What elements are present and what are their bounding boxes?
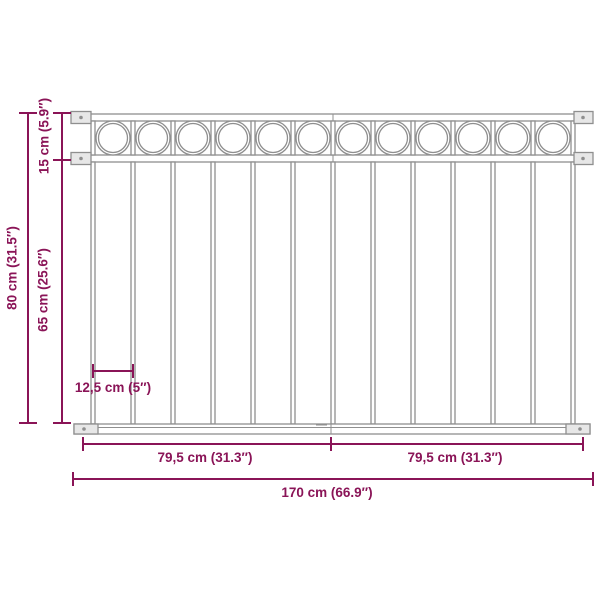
bottom-rail-end-plate-right <box>566 424 590 434</box>
label-total-height: 80 cm (31.5″) <box>5 226 20 310</box>
fence-bar <box>371 162 375 424</box>
ring-ornament <box>179 124 208 153</box>
fence-bar <box>491 162 495 424</box>
screw-icon <box>79 116 83 120</box>
fence-bar <box>331 162 335 424</box>
ring-separator <box>291 121 295 155</box>
ring-ornament <box>379 124 408 153</box>
bottom-rail <box>74 424 590 434</box>
label-right-half-width: 79,5 cm (31.3″) <box>407 450 502 465</box>
ring-separator <box>451 121 455 155</box>
dim-total-height: 80 cm (31.5″) <box>5 113 37 423</box>
ring-ornament <box>219 124 248 153</box>
ring-ornament <box>299 124 328 153</box>
ring-separator <box>171 121 175 155</box>
fence-bar <box>171 162 175 424</box>
screw-icon <box>581 157 585 161</box>
ring-separator <box>331 121 335 155</box>
dim-half-widths: 79,5 cm (31.3″) 79,5 cm (31.3″) <box>83 437 583 465</box>
diagram-canvas: 80 cm (31.5″) 15 cm (5.9″) 65 cm (25.6″)… <box>0 0 600 600</box>
ring-ornament <box>419 124 448 153</box>
label-top-rail-height: 15 cm (5.9″) <box>37 98 52 174</box>
dim-total-width: 170 cm (66.9″) <box>73 472 593 500</box>
ring-separator <box>571 121 575 155</box>
ring-separator <box>411 121 415 155</box>
screw-icon <box>581 116 585 120</box>
fence-bar <box>531 162 535 424</box>
ring-separator <box>91 121 95 155</box>
fence-bar <box>211 162 215 424</box>
middle-rail <box>76 155 588 162</box>
label-left-half-width: 79,5 cm (31.3″) <box>157 450 252 465</box>
fence-bar <box>451 162 455 424</box>
dim-bar-spacing: 12,5 cm (5″) <box>75 364 151 395</box>
label-total-width: 170 cm (66.9″) <box>281 485 372 500</box>
ring-separator <box>211 121 215 155</box>
fence-bar <box>411 162 415 424</box>
ring-ornament <box>259 124 288 153</box>
ring-ornament <box>459 124 488 153</box>
ring-separator <box>251 121 255 155</box>
screw-icon <box>79 157 83 161</box>
vertical-bars <box>91 162 575 424</box>
bottom-rail-end-plate-left <box>74 424 98 434</box>
ring-ornament <box>139 124 168 153</box>
ring-ornament <box>499 124 528 153</box>
fence-bar <box>251 162 255 424</box>
label-bar-spacing: 12,5 cm (5″) <box>75 380 151 395</box>
ring-separator <box>371 121 375 155</box>
screw-icon <box>578 427 582 431</box>
ring-ornament <box>539 124 568 153</box>
fence-dimension-diagram: 80 cm (31.5″) 15 cm (5.9″) 65 cm (25.6″)… <box>0 0 600 600</box>
ring-separator <box>531 121 535 155</box>
ring-ornament <box>99 124 128 153</box>
screw-icon <box>82 427 86 431</box>
fence-bar <box>571 162 575 424</box>
fence-bar <box>291 162 295 424</box>
ring-ornament <box>339 124 368 153</box>
top-rail <box>76 114 588 121</box>
dim-top-rail-height: 15 cm (5.9″) 65 cm (25.6″) <box>36 98 71 423</box>
ring-separator <box>131 121 135 155</box>
ring-separator <box>491 121 495 155</box>
label-lower-section-height: 65 cm (25.6″) <box>36 248 51 332</box>
